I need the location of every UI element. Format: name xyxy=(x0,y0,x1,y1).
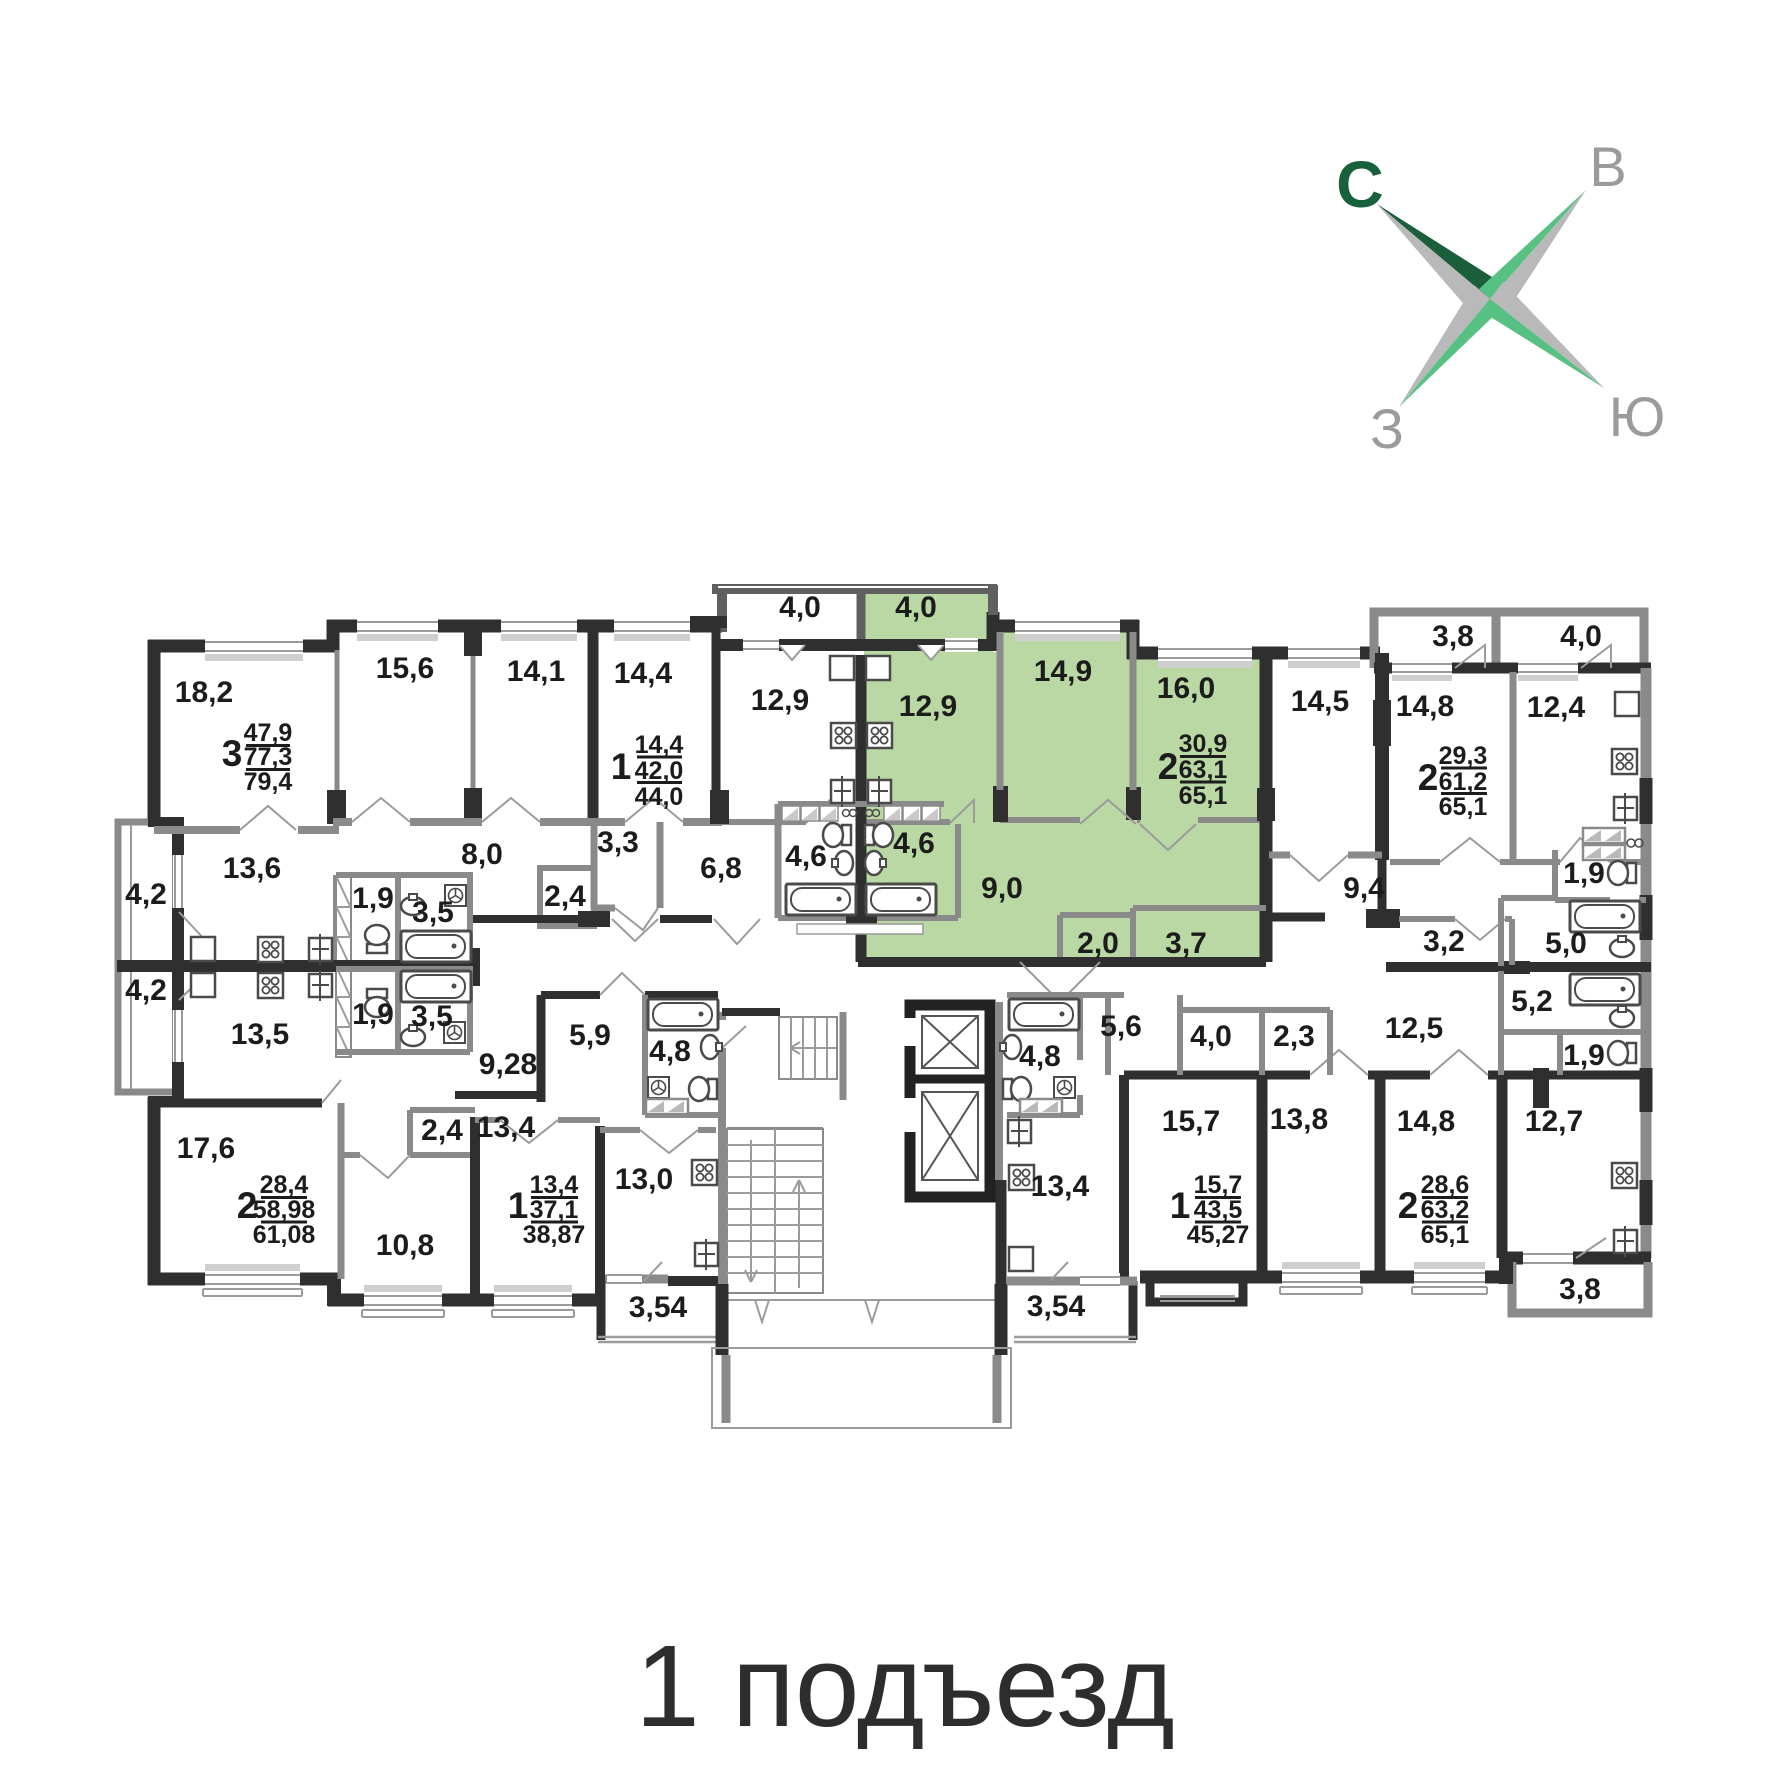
svg-text:8,0: 8,0 xyxy=(461,838,503,871)
svg-text:14,1: 14,1 xyxy=(507,655,565,688)
svg-text:2: 2 xyxy=(1158,746,1179,787)
svg-text:З: З xyxy=(1370,397,1404,460)
svg-text:4,0: 4,0 xyxy=(1560,620,1602,653)
svg-text:45,27: 45,27 xyxy=(1187,1221,1250,1249)
svg-text:15,7: 15,7 xyxy=(1194,1171,1243,1199)
svg-text:2,4: 2,4 xyxy=(421,1114,463,1147)
svg-text:28,4: 28,4 xyxy=(260,1171,309,1199)
svg-text:В: В xyxy=(1589,135,1626,198)
svg-text:9,0: 9,0 xyxy=(981,872,1023,905)
svg-text:5,9: 5,9 xyxy=(569,1019,611,1052)
svg-text:18,2: 18,2 xyxy=(175,676,233,709)
svg-text:4,0: 4,0 xyxy=(779,591,821,624)
svg-text:С: С xyxy=(1336,147,1384,221)
svg-text:15,6: 15,6 xyxy=(376,652,434,685)
svg-text:16,0: 16,0 xyxy=(1157,672,1215,705)
svg-text:10,8: 10,8 xyxy=(376,1229,434,1262)
svg-text:9,4: 9,4 xyxy=(1343,872,1385,905)
svg-text:58,98: 58,98 xyxy=(253,1196,316,1224)
svg-text:4,8: 4,8 xyxy=(649,1035,691,1068)
svg-text:9,28: 9,28 xyxy=(479,1048,537,1081)
svg-text:3,7: 3,7 xyxy=(1165,927,1207,960)
svg-text:1: 1 xyxy=(508,1185,529,1226)
svg-text:14,8: 14,8 xyxy=(1396,690,1454,723)
svg-text:12,4: 12,4 xyxy=(1527,691,1586,724)
svg-text:13,5: 13,5 xyxy=(231,1018,289,1051)
svg-text:13,4: 13,4 xyxy=(1031,1170,1090,1203)
svg-text:77,3: 77,3 xyxy=(244,743,293,771)
svg-text:63,2: 63,2 xyxy=(1421,1196,1470,1224)
svg-text:14,4: 14,4 xyxy=(614,657,673,690)
svg-text:3,8: 3,8 xyxy=(1559,1273,1601,1306)
svg-text:4,0: 4,0 xyxy=(1190,1020,1232,1053)
svg-text:14,8: 14,8 xyxy=(1397,1105,1455,1138)
svg-text:14,5: 14,5 xyxy=(1291,685,1349,718)
svg-text:5,2: 5,2 xyxy=(1511,985,1553,1018)
svg-text:12,5: 12,5 xyxy=(1385,1012,1443,1045)
svg-text:3,54: 3,54 xyxy=(629,1291,688,1324)
svg-text:5,6: 5,6 xyxy=(1100,1010,1142,1043)
svg-text:65,1: 65,1 xyxy=(1421,1221,1470,1249)
svg-text:30,9: 30,9 xyxy=(1179,730,1228,758)
svg-text:3: 3 xyxy=(222,733,243,774)
svg-text:2,3: 2,3 xyxy=(1273,1020,1315,1053)
svg-text:43,5: 43,5 xyxy=(1194,1196,1243,1224)
svg-text:5,0: 5,0 xyxy=(1545,927,1587,960)
svg-text:13,4: 13,4 xyxy=(530,1171,579,1199)
svg-text:3,5: 3,5 xyxy=(411,1000,453,1033)
svg-text:Ю: Ю xyxy=(1609,385,1666,448)
svg-text:17,6: 17,6 xyxy=(177,1132,235,1165)
svg-text:2: 2 xyxy=(1398,1185,1419,1226)
svg-text:1,9: 1,9 xyxy=(1563,857,1605,890)
svg-text:28,6: 28,6 xyxy=(1421,1171,1470,1199)
svg-text:13,8: 13,8 xyxy=(1270,1103,1328,1136)
svg-text:4,8: 4,8 xyxy=(1019,1040,1061,1073)
svg-text:14,4: 14,4 xyxy=(635,731,684,759)
svg-text:1,9: 1,9 xyxy=(352,998,394,1031)
svg-text:2: 2 xyxy=(1418,757,1439,798)
svg-text:65,1: 65,1 xyxy=(1439,793,1488,821)
svg-text:79,4: 79,4 xyxy=(244,768,293,796)
svg-text:29,3: 29,3 xyxy=(1439,742,1488,770)
svg-text:12,9: 12,9 xyxy=(751,684,809,717)
svg-text:1 подъезд: 1 подъезд xyxy=(635,1621,1174,1751)
svg-text:3,2: 3,2 xyxy=(1423,925,1465,958)
svg-text:4,0: 4,0 xyxy=(895,591,937,624)
svg-text:42,0: 42,0 xyxy=(635,757,684,785)
svg-text:3,54: 3,54 xyxy=(1027,1290,1086,1323)
svg-text:13,0: 13,0 xyxy=(615,1163,673,1196)
svg-text:2,0: 2,0 xyxy=(1077,927,1119,960)
svg-text:63,1: 63,1 xyxy=(1179,756,1228,784)
svg-text:61,08: 61,08 xyxy=(253,1221,316,1249)
svg-text:6,8: 6,8 xyxy=(700,852,742,885)
svg-text:3,3: 3,3 xyxy=(597,826,639,859)
svg-text:13,6: 13,6 xyxy=(223,852,281,885)
svg-text:4,6: 4,6 xyxy=(893,827,935,860)
svg-text:1,9: 1,9 xyxy=(1563,1039,1605,1072)
svg-text:44,0: 44,0 xyxy=(635,783,684,811)
svg-text:12,7: 12,7 xyxy=(1525,1105,1583,1138)
svg-text:1: 1 xyxy=(611,746,632,787)
svg-text:14,9: 14,9 xyxy=(1034,655,1092,688)
svg-text:37,1: 37,1 xyxy=(530,1196,579,1224)
svg-text:2,4: 2,4 xyxy=(544,880,586,913)
svg-text:12,9: 12,9 xyxy=(899,690,957,723)
svg-text:61,2: 61,2 xyxy=(1439,768,1488,796)
svg-text:38,87: 38,87 xyxy=(523,1221,586,1249)
svg-text:4,2: 4,2 xyxy=(125,974,167,1007)
svg-text:3,5: 3,5 xyxy=(412,896,454,929)
svg-text:65,1: 65,1 xyxy=(1179,782,1228,810)
svg-text:3,8: 3,8 xyxy=(1432,620,1474,653)
svg-text:4,6: 4,6 xyxy=(785,840,827,873)
svg-text:15,7: 15,7 xyxy=(1162,1105,1220,1138)
svg-text:13,4: 13,4 xyxy=(477,1111,536,1144)
svg-text:1: 1 xyxy=(1170,1185,1191,1226)
svg-text:4,2: 4,2 xyxy=(125,878,167,911)
svg-text:1,9: 1,9 xyxy=(352,882,394,915)
